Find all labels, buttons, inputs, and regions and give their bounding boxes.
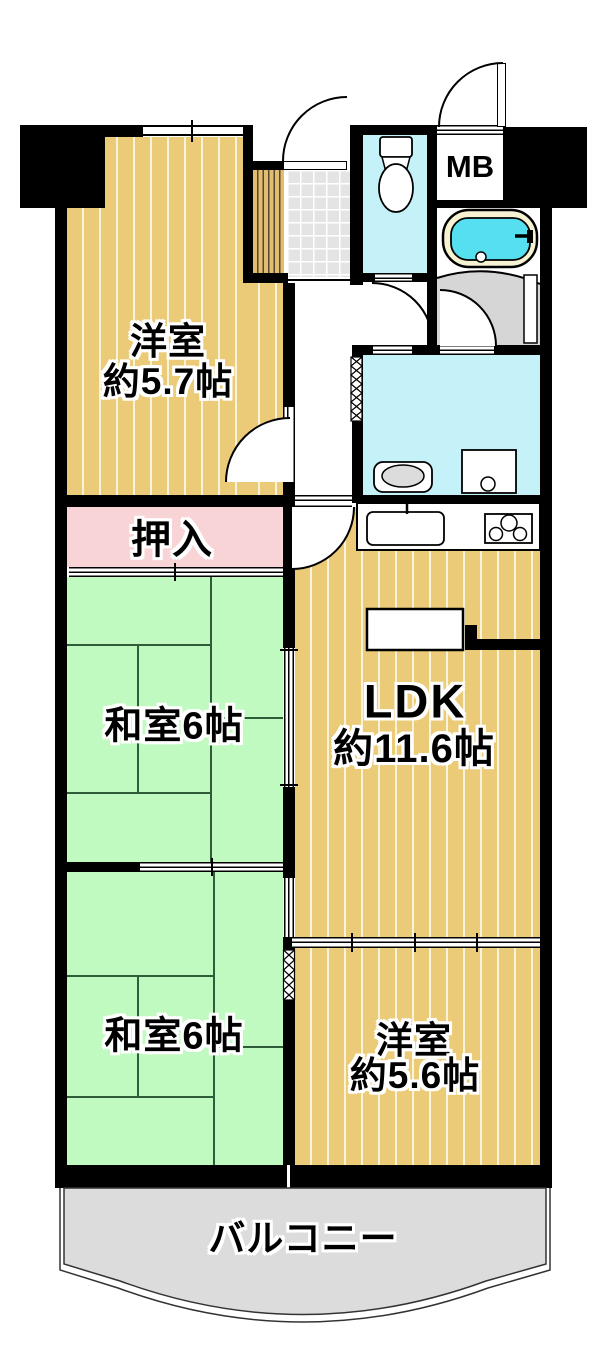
toilet-bowl-icon — [379, 164, 413, 212]
ldk-counter-table — [367, 609, 463, 650]
washbasin-bowl — [382, 465, 424, 487]
anteroom-cabinet — [524, 275, 537, 343]
western1-door-swing — [226, 418, 290, 482]
room-label-western2-size: 約5.6帖 — [350, 1045, 480, 1099]
entrance-door-arc — [283, 97, 347, 161]
room-label-closet: 押入 — [131, 507, 213, 565]
floorplan: 洋室 約5.7帖 押入 和室6帖 LDK 約11.6帖 和室6帖 洋室 約5.6… — [0, 0, 609, 1354]
stove-burner — [514, 528, 527, 541]
room-label-western1-size: 約5.7帖 — [103, 351, 233, 405]
room-label-japanese2: 和室6帖 — [104, 1005, 243, 1060]
bathtub-faucet-icon — [527, 230, 533, 243]
stove-burner — [490, 528, 503, 541]
plan-vector-overlay — [0, 0, 609, 1354]
stove-burner — [501, 515, 517, 531]
meter-box-door-arc — [439, 63, 503, 127]
room-label-japanese1: 和室6帖 — [104, 695, 243, 750]
washer-drain — [481, 477, 495, 491]
room-label-ldk-size: 約11.6帖 — [333, 716, 495, 774]
pipe-space-hatch — [284, 357, 363, 1000]
toilet-tank-icon — [380, 137, 412, 157]
kitchen-sink-icon — [367, 512, 444, 545]
bathtub-water — [451, 218, 530, 260]
room-label-meter-box: MB — [446, 149, 494, 185]
room-label-balcony: バルコニー — [208, 1208, 397, 1262]
ldk-door-swing — [292, 507, 354, 569]
bathtub-drain — [476, 252, 486, 262]
toilet-door-arc — [372, 283, 433, 344]
